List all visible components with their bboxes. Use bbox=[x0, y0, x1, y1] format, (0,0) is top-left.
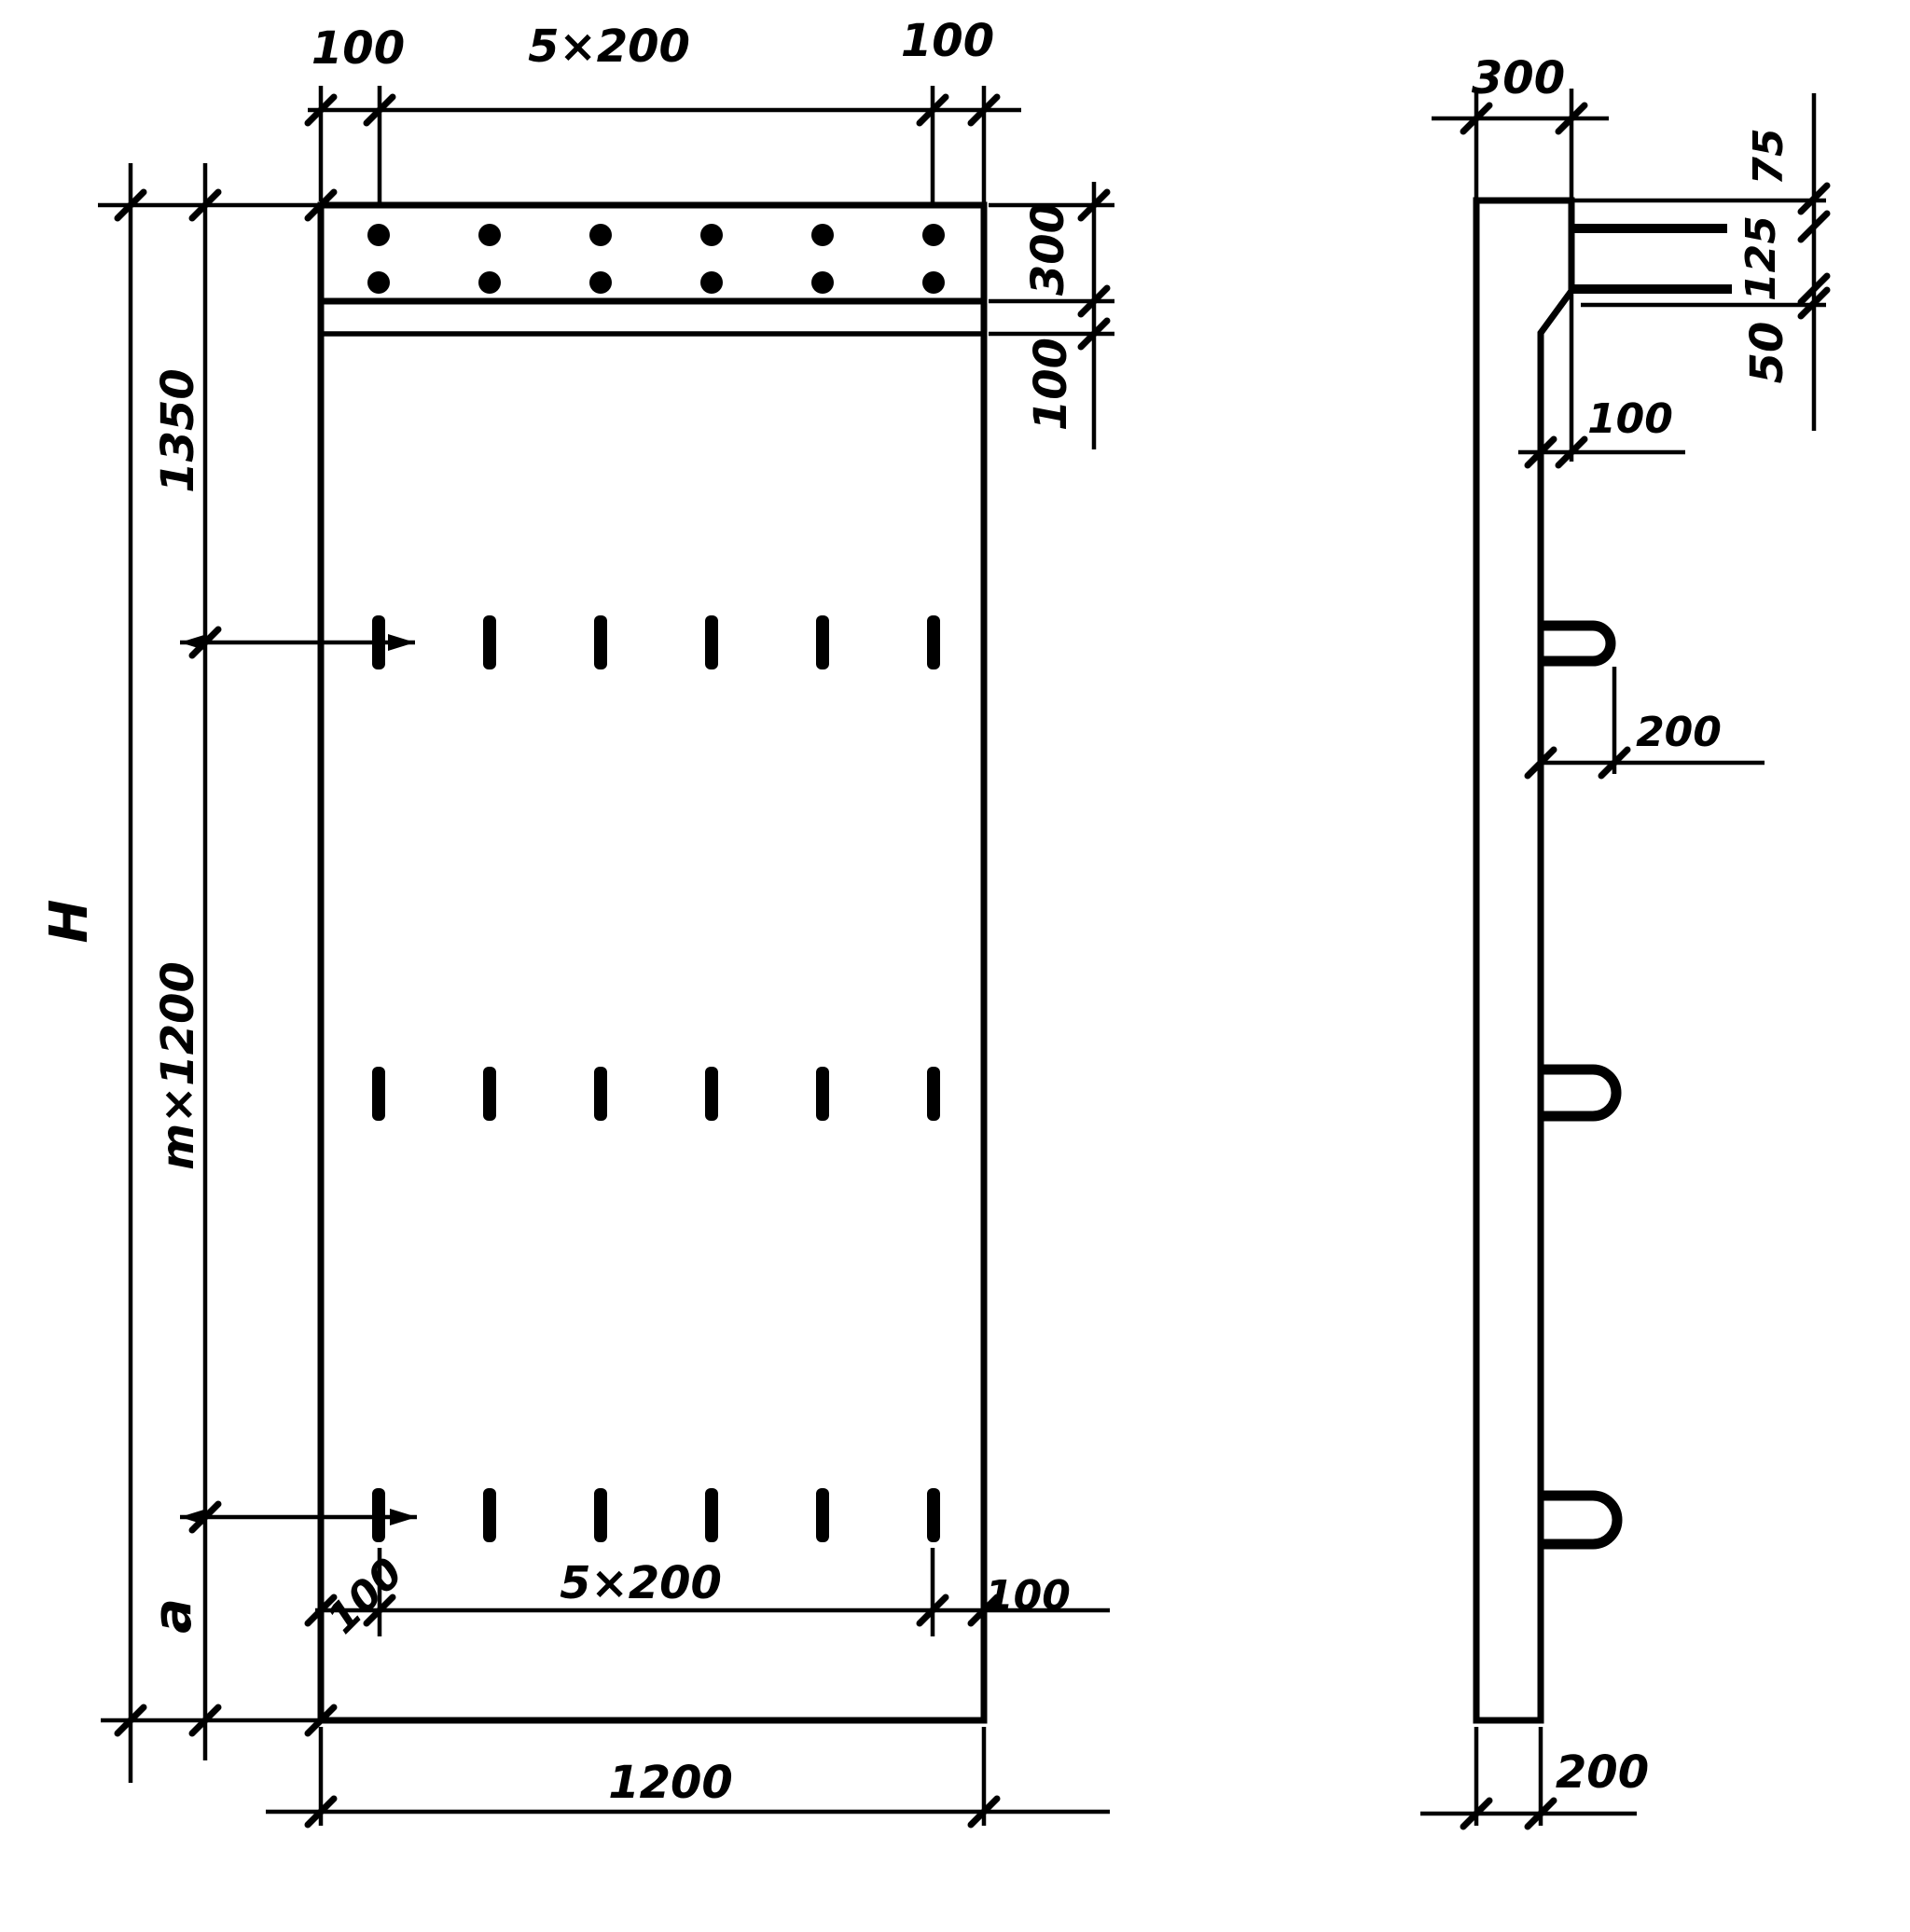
slot-row-3 bbox=[372, 1488, 940, 1542]
width-dimension: 1200 bbox=[266, 1727, 1110, 1826]
dim-width-1200: 1200 bbox=[608, 1757, 733, 1809]
dim-top-center: 5×200 bbox=[528, 21, 690, 73]
dim-band-300: 300 bbox=[1022, 202, 1074, 296]
dim-bottom-right: 100 bbox=[985, 1572, 1071, 1620]
dim-left-1350: 1350 bbox=[152, 368, 204, 493]
dim-top-left: 100 bbox=[311, 22, 405, 75]
loop-projection-dimension: 200 bbox=[1528, 667, 1765, 776]
side-right-dimensions: 75 125 50 bbox=[1737, 93, 1827, 431]
engineering-drawing-page: 100 5×200 100 300 100 bbox=[0, 0, 1910, 1932]
dim-top-right: 100 bbox=[901, 15, 994, 67]
right-band-dimension: 300 100 bbox=[989, 182, 1114, 449]
left-dimensions: 1350 m×1200 a H bbox=[39, 163, 417, 1783]
side-top-dimension: 300 bbox=[1432, 52, 1609, 199]
dim-left-a: a bbox=[143, 1598, 203, 1634]
front-view: 100 5×200 100 300 100 bbox=[39, 15, 1114, 1826]
dim-side-75: 75 bbox=[1745, 128, 1792, 185]
dim-left-H: H bbox=[39, 900, 100, 944]
dim-bottom-center: 5×200 bbox=[560, 1557, 722, 1609]
dim-loop-200: 200 bbox=[1636, 709, 1722, 756]
panel-outline bbox=[321, 205, 984, 1720]
anchor-dots bbox=[367, 224, 945, 294]
dim-side-50: 50 bbox=[1741, 322, 1793, 384]
bottom-dimension-chain: 100 5×200 100 bbox=[308, 1548, 1110, 1643]
dim-side-125: 125 bbox=[1737, 215, 1785, 301]
arrowhead bbox=[388, 634, 415, 651]
dim-side-300: 300 bbox=[1472, 52, 1565, 104]
side-bottom-dimension: 200 bbox=[1420, 1727, 1649, 1827]
arrowhead bbox=[390, 1509, 417, 1525]
dim-side-100: 100 bbox=[1587, 395, 1673, 443]
side-view: 300 75 125 50 100 bbox=[1420, 52, 1827, 1827]
dim-bottom-left: 100 bbox=[318, 1549, 412, 1643]
dim-band-100: 100 bbox=[1025, 338, 1077, 431]
slot-row-1 bbox=[372, 615, 940, 669]
top-lug-lines bbox=[1571, 200, 1826, 305]
slot-row-2 bbox=[372, 1067, 940, 1121]
top-dimension: 100 5×200 100 bbox=[308, 15, 1021, 203]
dim-left-m1200: m×1200 bbox=[152, 961, 204, 1170]
panel-drawing: 100 5×200 100 300 100 bbox=[0, 0, 1910, 1932]
dim-side-bottom-200: 200 bbox=[1556, 1746, 1649, 1799]
